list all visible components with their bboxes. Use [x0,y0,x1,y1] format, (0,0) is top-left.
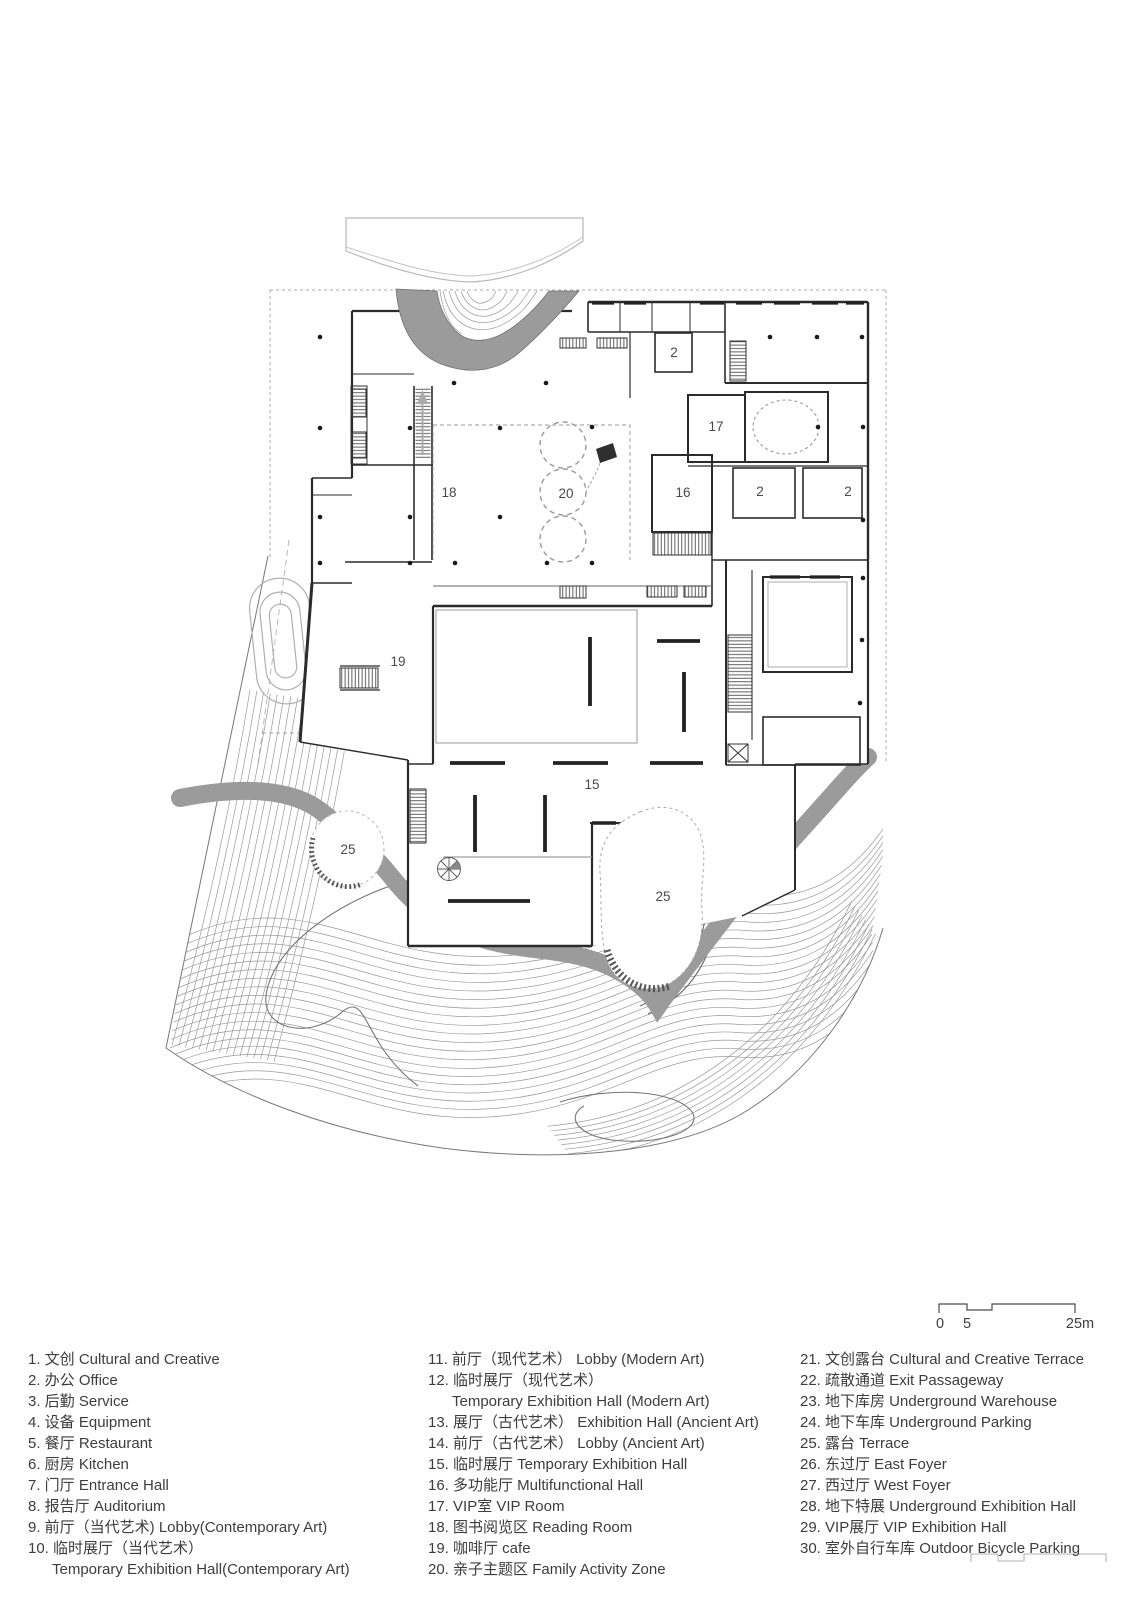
legend-item: 16. 多功能厅 Multifunctional Hall [428,1475,759,1496]
legend-item: 17. VIP室 VIP Room [428,1496,759,1517]
legend-item: 23. 地下库房 Underground Warehouse [800,1391,1084,1412]
scale-label-25m: 25m [1066,1316,1094,1332]
room-label: 20 [558,486,573,501]
legend-item: 12. 临时展厅（现代艺术） [428,1370,759,1391]
legend-item: 3. 后勤 Service [28,1391,350,1412]
legend-item: 10. 临时展厅（当代艺术） [28,1538,350,1559]
legend-item: 5. 餐厅 Restaurant [28,1433,350,1454]
room-label: 2 [670,345,678,360]
legend-item: 4. 设备 Equipment [28,1412,350,1433]
legend-item-continuation: Temporary Exhibition Hall (Modern Art) [428,1391,759,1412]
room-label: 18 [441,485,456,500]
floor-plan-sheet: 2 17 18 20 16 2 2 19 15 25 25 0 5 25m 1.… [0,0,1132,1600]
legend-item: 7. 门厅 Entrance Hall [28,1475,350,1496]
legend-item: 6. 厨房 Kitchen [28,1454,350,1475]
legend-item: 22. 疏散通道 Exit Passageway [800,1370,1084,1391]
legend-column-3: 21. 文创露台 Cultural and Creative Terrace 2… [800,1349,1084,1559]
room-label: 15 [584,777,599,792]
legend-item: 21. 文创露台 Cultural and Creative Terrace [800,1349,1084,1370]
legend-item: 8. 报告厅 Auditorium [28,1496,350,1517]
legend-item: 9. 前厅（当代艺术) Lobby(Contemporary Art) [28,1517,350,1538]
legend-item: 30. 室外自行车库 Outdoor Bicycle Parking [800,1538,1084,1559]
legend-item: 28. 地下特展 Underground Exhibition Hall [800,1496,1084,1517]
room-label: 17 [708,419,723,434]
building [300,296,868,946]
legend-item: 14. 前厅（古代艺术） Lobby (Ancient Art) [428,1433,759,1454]
legend-item: 19. 咖啡厅 cafe [428,1538,759,1559]
legend-item-continuation: Temporary Exhibition Hall(Contemporary A… [28,1559,350,1580]
entrance-canopy [346,218,583,282]
legend-column-1: 1. 文创 Cultural and Creative 2. 办公 Office… [28,1349,350,1580]
scale-bar: 0 5 25m [936,1304,1094,1332]
legend-item: 1. 文创 Cultural and Creative [28,1349,350,1370]
building-footprint [300,296,868,946]
legend-item: 29. VIP展厅 VIP Exhibition Hall [800,1517,1084,1538]
scale-label-0: 0 [936,1316,944,1332]
legend-item: 11. 前厅（现代艺术） Lobby (Modern Art) [428,1349,759,1370]
legend-item: 27. 西过厅 West Foyer [800,1475,1084,1496]
room-label: 19 [390,654,405,669]
legend-item: 18. 图书阅览区 Reading Room [428,1517,759,1538]
legend-item: 20. 亲子主题区 Family Activity Zone [428,1559,759,1580]
legend-column-2: 11. 前厅（现代艺术） Lobby (Modern Art) 12. 临时展厅… [428,1349,759,1580]
room-label: 25 [655,889,670,904]
room-label: 2 [844,484,852,499]
legend-item: 25. 露台 Terrace [800,1433,1084,1454]
legend-item: 2. 办公 Office [28,1370,350,1391]
legend-item: 15. 临时展厅 Temporary Exhibition Hall [428,1454,759,1475]
scale-label-5: 5 [963,1316,971,1332]
legend-item: 26. 东过厅 East Foyer [800,1454,1084,1475]
legend-item: 13. 展厅（古代艺术） Exhibition Hall (Ancient Ar… [428,1412,759,1433]
spiral-stair-icon [438,858,461,881]
legend-item: 24. 地下车库 Underground Parking [800,1412,1084,1433]
room-label: 2 [756,484,764,499]
room-label: 16 [675,485,690,500]
terrace-south [600,807,704,988]
room-label: 25 [340,842,355,857]
